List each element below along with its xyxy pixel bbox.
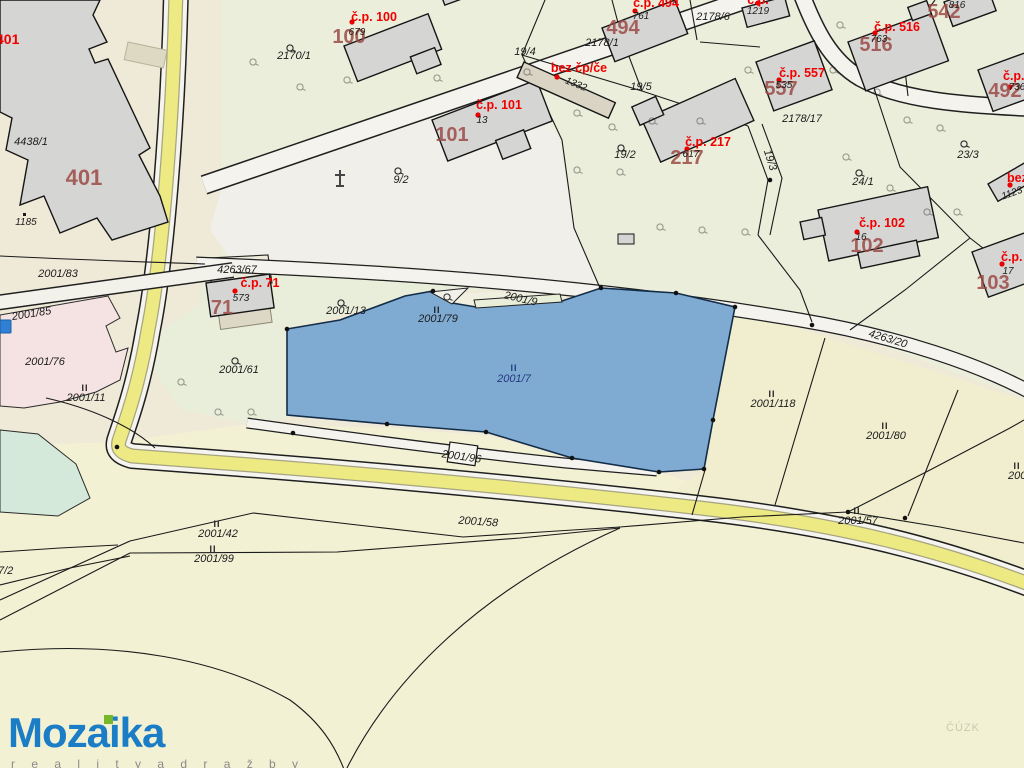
hn-13: 13 [476, 115, 488, 126]
hn-761: 761 [633, 11, 650, 22]
hn-679: 679 [349, 27, 366, 38]
hn-1219: 1219 [747, 6, 770, 17]
map-watermark: ČÚZK [946, 722, 980, 734]
parcel-2001-11: 2001/11 [66, 392, 106, 404]
hn-16: 16 [855, 232, 867, 243]
parcel-7-2: 7/2 [0, 565, 13, 577]
parcel-2001-42: 2001/42 [197, 528, 238, 540]
parcel-2001-7: 2001/7 [496, 373, 532, 385]
hn-736: 736 [1009, 82, 1024, 93]
landuse-ii-blue: II [510, 363, 517, 373]
parcel-2178-6: 2178/6 [695, 11, 731, 23]
hn-535: 535 [776, 80, 793, 91]
hn-17: 17 [1002, 266, 1014, 277]
parcel-2001-13: 2001/13 [325, 305, 367, 317]
hn-617: 617 [683, 149, 700, 160]
mozaika-logo-green-dot-icon [104, 715, 113, 724]
map-canvas[interactable]: č.p. 401 č.p. 100 č.p. 101 bez čp/če č.p… [0, 0, 1024, 768]
label-cp-516: č.p. 516 [874, 20, 920, 34]
label-bez-cpce-2: bez čp/če [1007, 171, 1024, 185]
building-tiny [618, 234, 634, 244]
point-symbol-1185 [23, 213, 26, 216]
parcel-19-5: 19/5 [630, 81, 652, 93]
parcel-2001-80: 2001/80 [865, 430, 907, 442]
parcel-19-2: 19/2 [614, 149, 635, 161]
parcel-23-3: 23/3 [956, 149, 979, 161]
parcel-2001-edge: 2001 [1007, 470, 1024, 482]
number-71: 71 [211, 297, 233, 319]
parcel-2001-57: 2001/57 [837, 515, 879, 527]
parcel-2001-99: 2001/99 [193, 553, 234, 565]
number-401: 401 [66, 165, 103, 190]
hn-816: 816 [949, 0, 966, 11]
label-cp-100: č.p. 100 [351, 10, 397, 24]
parcel-2001-76: 2001/76 [24, 356, 66, 368]
parcel-24-1: 24/1 [851, 176, 873, 188]
mozaika-logo-tagline: r e a l i t y a d r a ž b y [11, 758, 305, 768]
hn-573: 573 [233, 293, 250, 304]
label-cp-71: č.p. 71 [241, 276, 280, 290]
parcel-2001-61: 2001/61 [218, 364, 259, 376]
mozaika-logo-text: Mozaika [8, 712, 305, 754]
number-101: 101 [435, 124, 468, 146]
parcel-2001-118: 2001/118 [749, 398, 796, 410]
parcel-2178-1: 2178/1 [584, 37, 619, 49]
label-cp-103: č.p. [1001, 250, 1023, 264]
parcel-4263-67: 4263/67 [217, 264, 258, 276]
hn-1185: 1185 [15, 217, 37, 228]
label-cp-102: č.p. 102 [859, 216, 905, 230]
parcel-2001-83: 2001/83 [37, 268, 79, 280]
parcel-4438-1: 4438/1 [14, 136, 48, 148]
label-cp-101: č.p. 101 [476, 98, 522, 112]
parcel-9-2: 9/2 [393, 174, 408, 186]
parcel-2001-79: 2001/79 [417, 313, 458, 325]
blue-marker-icon [0, 320, 11, 333]
parcel-2178-17: 2178/17 [781, 113, 823, 125]
hn-763: 763 [871, 34, 888, 45]
label-cp-401: č.p. 401 [0, 31, 20, 47]
cadastral-map[interactable]: č.p. 401 č.p. 100 č.p. 101 bez čp/če č.p… [0, 0, 1024, 768]
parcel-2170-1: 2170/1 [276, 50, 311, 62]
label-bez-cpce: bez čp/če [551, 61, 607, 75]
mozaika-logo: Mozaika r e a l i t y a d r a ž b y [8, 712, 305, 768]
label-cp-494: č.p. 494 [633, 0, 679, 10]
parcel-19-4: 19/4 [514, 46, 535, 58]
